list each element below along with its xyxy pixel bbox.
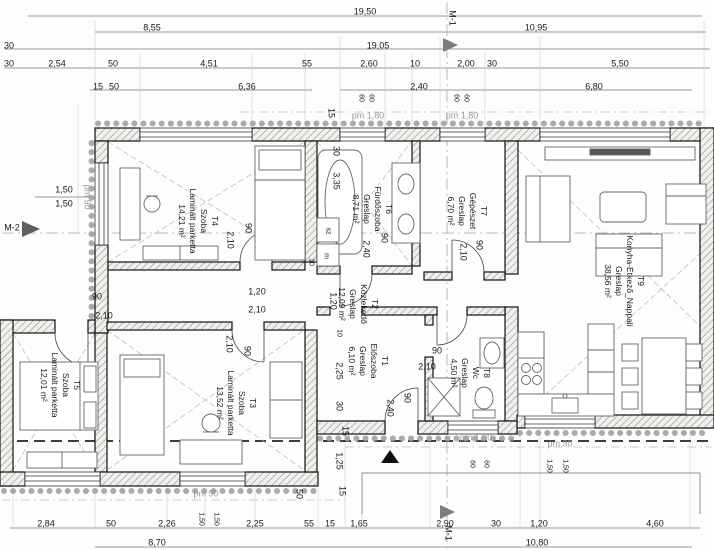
armchair bbox=[666, 184, 706, 224]
room-tag: T6 bbox=[383, 177, 394, 241]
desk bbox=[120, 168, 140, 240]
bed bbox=[255, 146, 305, 260]
room-label-furdoszoba: T6 Fürdőszoba Greslap 8,71 m² bbox=[350, 177, 394, 241]
section-marker-m1-arrow-bottom bbox=[440, 505, 455, 519]
sideboard-2 bbox=[27, 452, 97, 468]
room-label-szoba-t5: T5 Szoba Laminált parketta 12,01 m² bbox=[38, 339, 82, 431]
fridge bbox=[518, 332, 544, 358]
room-name: Fürdőszoba bbox=[372, 177, 383, 241]
room-label-gepeszet: T7 Gépészet Greslap 6,70 m² bbox=[445, 180, 489, 242]
room-label-szoba-t3: T3 Szoba Laminált parketta 13,52 m² bbox=[214, 357, 258, 449]
room-tag: T3 bbox=[247, 357, 258, 449]
room-area: 14,21 m² bbox=[176, 175, 187, 267]
bed-2 bbox=[120, 355, 164, 455]
room-area: 4,50 m² bbox=[448, 348, 459, 398]
washer-dryer bbox=[317, 218, 339, 266]
room-name: Gépészet bbox=[467, 180, 478, 242]
room-tag: T2 bbox=[369, 265, 380, 343]
room-flooring: Greslap bbox=[613, 221, 624, 341]
room-name: Szoba bbox=[60, 339, 71, 431]
sofa bbox=[526, 176, 570, 242]
room-name: Szoba bbox=[198, 175, 209, 267]
room-tag: T1 bbox=[379, 322, 390, 400]
room-label-wc: T8 Wc Greslap 4,50 m² bbox=[448, 348, 492, 398]
wardrobe bbox=[270, 362, 302, 438]
room-area: 38,56 m² bbox=[602, 221, 613, 341]
room-label-kozlekedo: T2 Közlekedő Greslap 12,09 m² bbox=[336, 265, 380, 343]
terrace-outline bbox=[362, 473, 700, 514]
room-area: 6,70 m² bbox=[445, 180, 456, 242]
room-tag: T9 bbox=[635, 221, 646, 341]
room-area: 12,09 m² bbox=[336, 265, 347, 343]
desk-chair bbox=[144, 196, 160, 212]
washbasin-vanity bbox=[392, 163, 420, 243]
room-tag: T7 bbox=[478, 180, 489, 242]
room-flooring: Greslap bbox=[456, 180, 467, 242]
room-flooring: Laminált parketta bbox=[225, 357, 236, 449]
room-label-szoba-t4: T4 Szoba Laminált parketta 14,21 m² bbox=[176, 175, 220, 267]
room-name: Wc bbox=[470, 348, 481, 398]
room-flooring: Greslap bbox=[347, 265, 358, 343]
floor-plan-page: T1 Előszoba Greslap 6,10 m² T2 Közlekedő… bbox=[0, 0, 714, 550]
room-name: Közlekedő bbox=[358, 265, 369, 343]
tv-board bbox=[545, 147, 695, 160]
room-flooring: Greslap bbox=[459, 348, 470, 398]
room-name: Szoba bbox=[236, 357, 247, 449]
room-flooring: Laminált parketta bbox=[49, 339, 60, 431]
room-area: 13,52 m² bbox=[214, 357, 225, 449]
room-area: 12,01 m² bbox=[38, 339, 49, 431]
room-tag: T8 bbox=[481, 348, 492, 398]
room-flooring: Greslap bbox=[361, 177, 372, 241]
section-marker-m2-arrow bbox=[22, 221, 40, 237]
room-tag: T5 bbox=[71, 339, 82, 431]
room-flooring: Laminált parketta bbox=[187, 175, 198, 267]
coffee-table bbox=[600, 192, 646, 222]
room-tag: T4 bbox=[209, 175, 220, 267]
section-marker-m1-arrow-top bbox=[443, 38, 458, 52]
room-name: Konyha-Étkező_Nappali bbox=[624, 221, 635, 341]
entrance-arrow bbox=[381, 450, 399, 463]
room-label-nappali: T9 Konyha-Étkező_Nappali Greslap 38,56 m… bbox=[602, 221, 646, 341]
dining-table bbox=[642, 338, 686, 414]
room-area: 8,71 m² bbox=[350, 177, 361, 241]
